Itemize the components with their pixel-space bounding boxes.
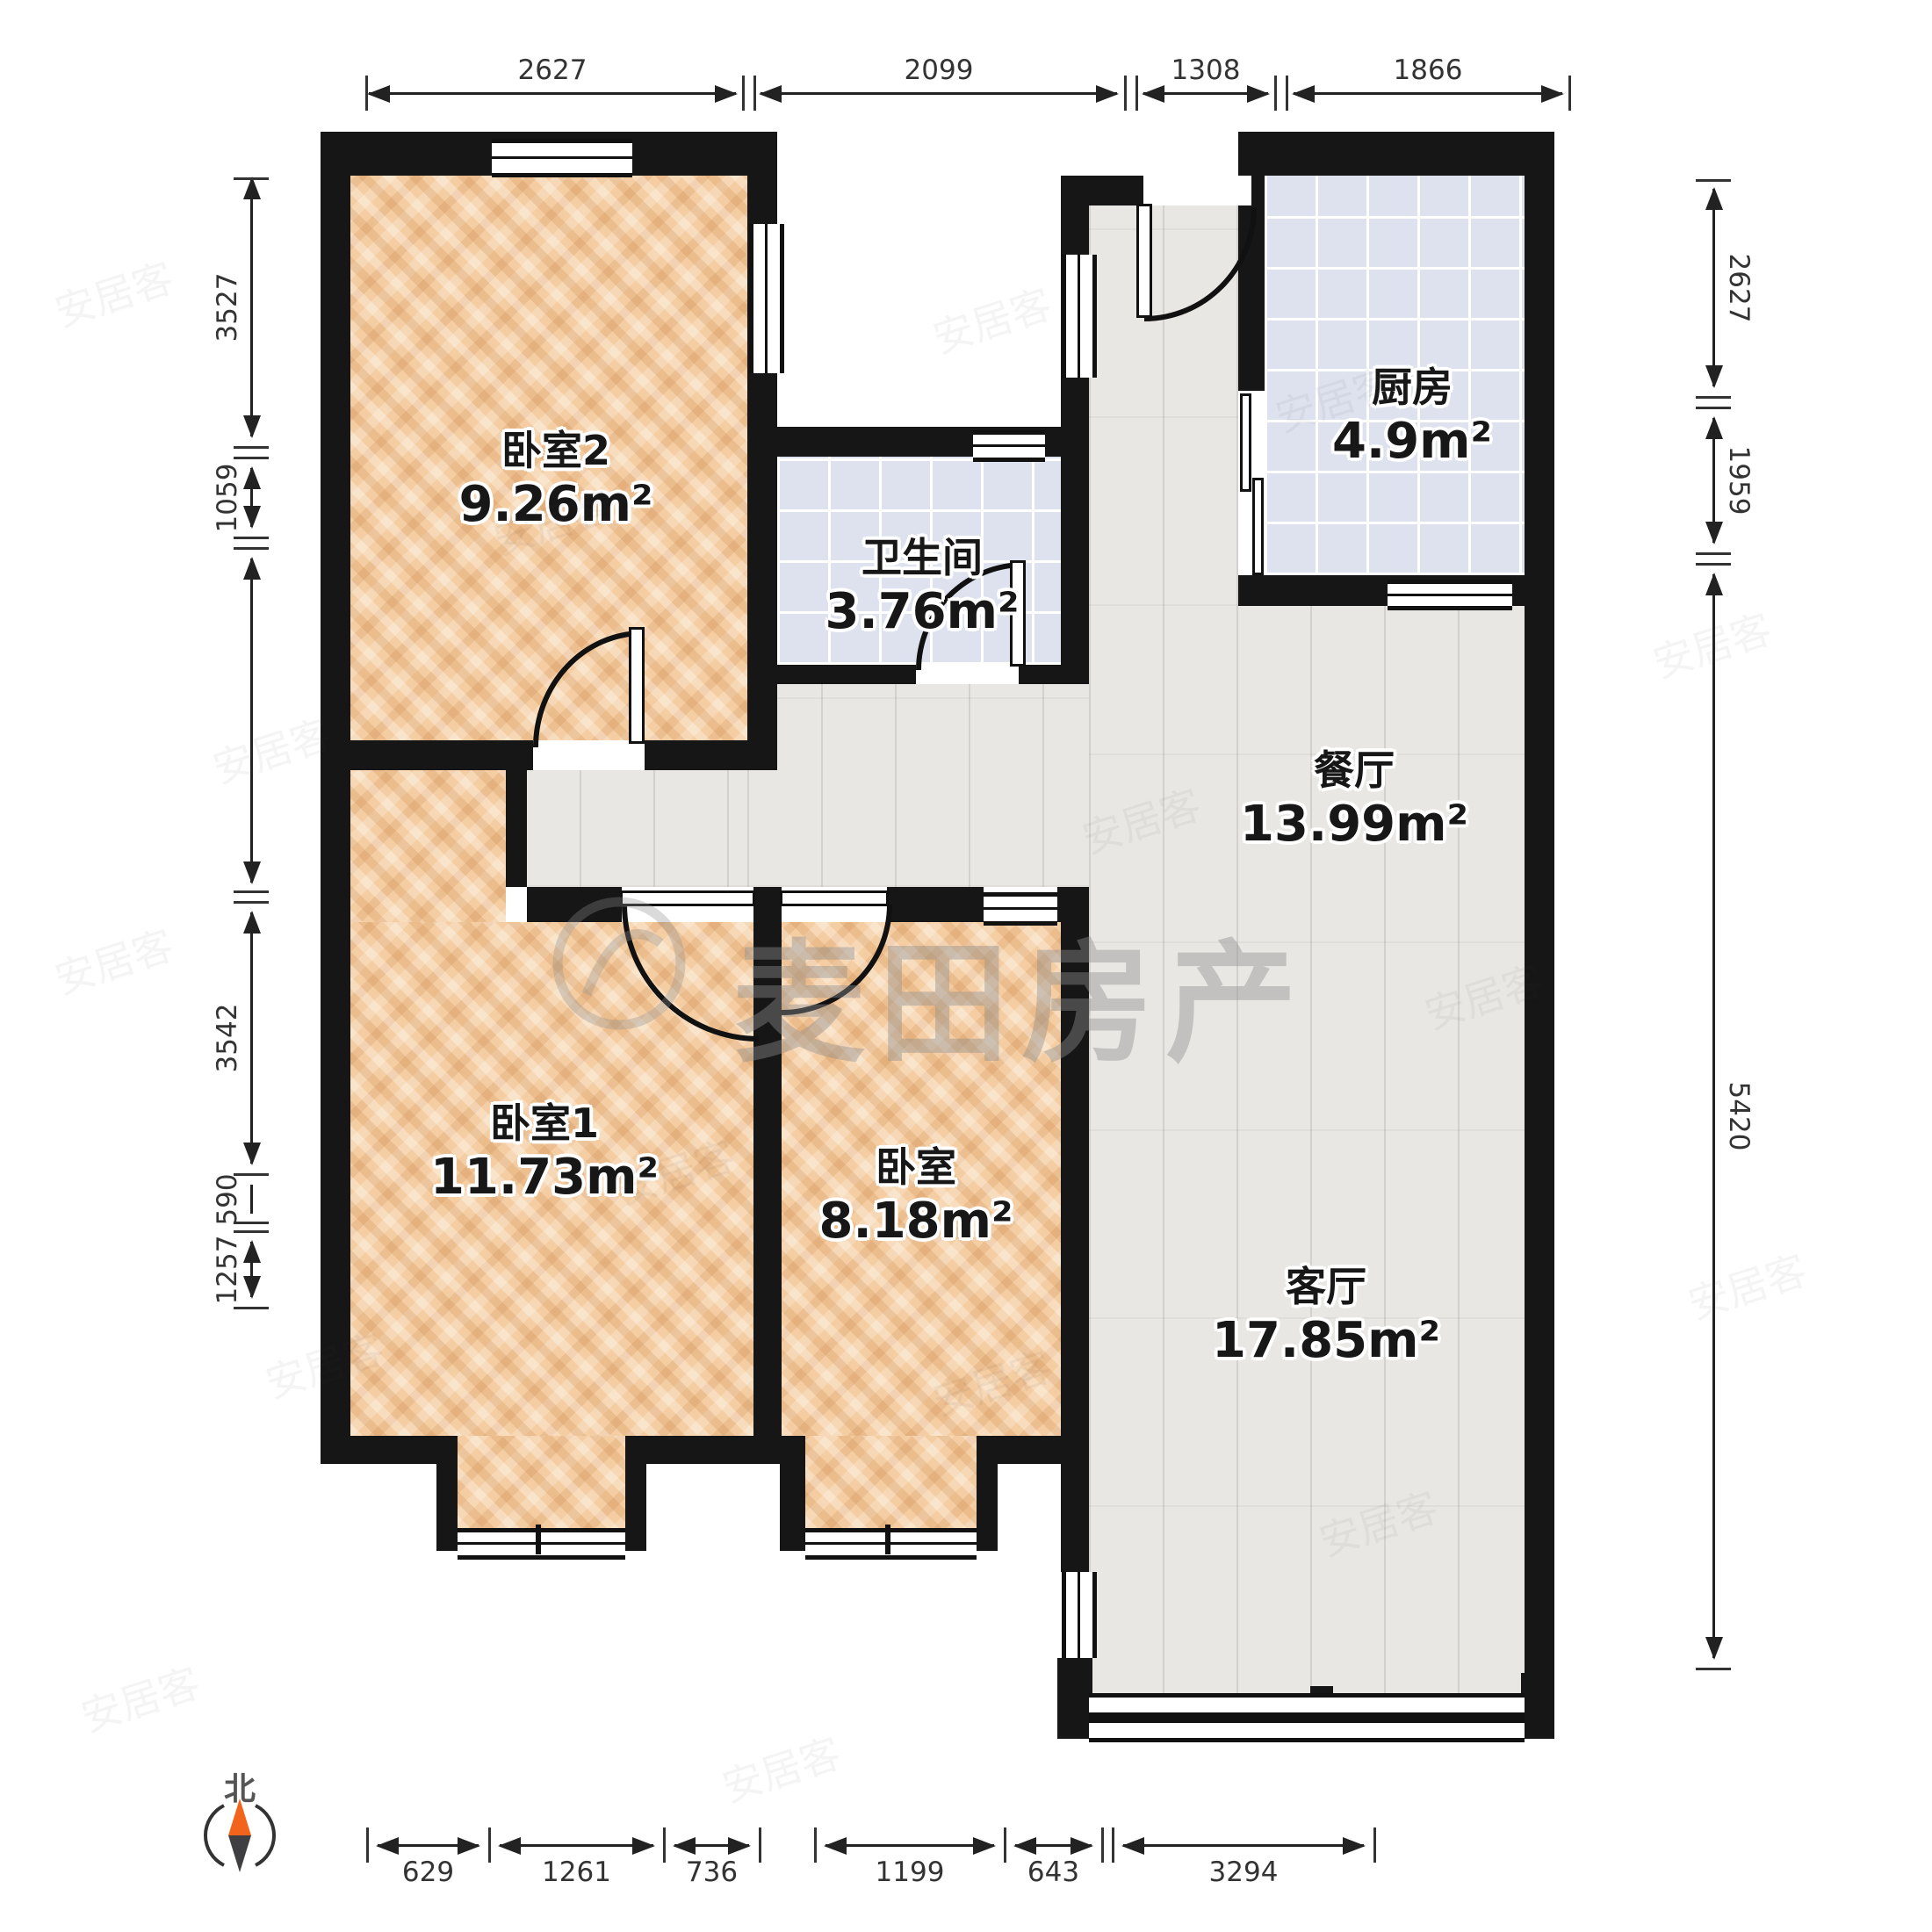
dimension-tick — [1004, 1827, 1006, 1863]
room-area: 13.99m² — [1240, 797, 1468, 853]
dimension-bottom-1199: 1199 — [825, 1844, 994, 1847]
dimension-left-3527: 3527 — [250, 178, 253, 436]
dimension-tick — [742, 76, 745, 111]
dimension-left-590: 590 — [250, 1185, 253, 1214]
dimension-tick — [234, 1230, 269, 1233]
window — [1062, 1572, 1097, 1658]
dimension-tick — [234, 901, 269, 904]
sliding-door-kitchen — [1252, 478, 1264, 575]
wall — [1238, 132, 1554, 176]
window-tick — [885, 1525, 890, 1554]
dimension-tick — [1696, 407, 1731, 409]
dimension-tick — [1696, 396, 1731, 399]
wall — [506, 770, 527, 887]
watermark-portal: 安居客 — [1680, 1238, 1813, 1330]
dimension-bottom-1261: 1261 — [500, 1844, 653, 1847]
dimension-top-1308: 1308 — [1143, 92, 1268, 95]
compass-icon — [198, 1793, 282, 1878]
wall — [625, 1436, 646, 1551]
room-name: 卧室2 — [458, 426, 652, 477]
room-name: 卧室 — [818, 1143, 1013, 1193]
window-living-south — [1089, 1693, 1525, 1742]
room-area: 4.9m² — [1332, 414, 1492, 470]
dimension-bottom-629: 629 — [378, 1844, 479, 1847]
dimension-tick — [1568, 76, 1571, 111]
dimension-tick — [234, 537, 269, 539]
dimension-tick — [234, 177, 269, 180]
wall — [747, 665, 916, 684]
dimension-tick — [366, 1827, 369, 1863]
window-tick — [536, 1525, 541, 1554]
room-label-bathroom: 卫生间 3.76m² — [825, 533, 1019, 640]
room-floor-bedroom1-bay — [458, 1436, 625, 1528]
room-floor-bedroom-bay — [805, 1436, 977, 1528]
wall — [780, 1436, 805, 1551]
wall — [1525, 132, 1554, 1699]
dimension-tick — [1696, 552, 1731, 555]
dimension-tick — [1373, 1827, 1376, 1863]
door-leaf-bedroom2 — [629, 627, 645, 744]
dimension-tick — [1274, 76, 1277, 111]
room-area: 17.85m² — [1212, 1313, 1440, 1369]
room-floor-bedroom1 — [350, 770, 506, 922]
dimension-tick — [1135, 76, 1138, 111]
dimension-right-1959: 1959 — [1712, 418, 1715, 543]
dimension-tick — [234, 1307, 269, 1309]
window — [973, 430, 1045, 462]
watermark-portal: 安居客 — [925, 272, 1058, 364]
dimension-left-1059: 1059 — [250, 468, 253, 527]
dimension-top-2099: 2099 — [761, 92, 1117, 95]
dimension-tick — [1696, 1668, 1731, 1670]
wall — [1251, 176, 1265, 205]
window — [1388, 580, 1512, 610]
dimension-tick — [814, 1827, 817, 1863]
dimension-top-2627: 2627 — [369, 92, 736, 95]
room-name: 餐厅 — [1240, 746, 1468, 797]
wall — [321, 132, 350, 1464]
dimension-tick — [753, 76, 756, 111]
dimension-bottom-3294: 3294 — [1123, 1844, 1364, 1847]
dimension-tick — [1101, 1827, 1104, 1863]
dimension-tick — [759, 1827, 761, 1863]
dimension-tick — [663, 1827, 666, 1863]
wall — [998, 1436, 1089, 1464]
watermark-portal: 安居客 — [714, 1721, 847, 1813]
dimension-top-1866: 1866 — [1294, 92, 1562, 95]
room-label-living: 客厅 17.85m² — [1212, 1262, 1440, 1369]
dimension-tick — [234, 1173, 269, 1176]
room-label-dining: 餐厅 13.99m² — [1240, 746, 1468, 853]
room-area: 8.18m² — [818, 1193, 1013, 1250]
watermark-logo-icon — [544, 889, 694, 1038]
watermark-portal: 安居客 — [73, 1651, 206, 1743]
dimension-tick — [234, 890, 269, 893]
watermark-brand: 麦田房产 — [733, 898, 1309, 1088]
dimension-left-3542: 3542 — [250, 912, 253, 1164]
room-name: 卧室1 — [430, 1099, 659, 1150]
wall — [1521, 1673, 1554, 1739]
door-leaf-entry — [1136, 204, 1152, 318]
room-name: 客厅 — [1212, 1262, 1440, 1313]
dimension-tick — [1696, 179, 1731, 182]
dimension-bottom-736: 736 — [674, 1844, 749, 1847]
wall — [321, 740, 533, 770]
wall — [1061, 176, 1143, 205]
wall — [977, 1436, 998, 1551]
watermark-portal: 安居客 — [1645, 597, 1778, 689]
dimension-tick — [365, 76, 368, 111]
wall — [645, 740, 747, 770]
dimension-tick — [1696, 563, 1731, 566]
dimension-tick — [234, 457, 269, 459]
wall — [1019, 665, 1061, 684]
dimension-tick — [234, 446, 269, 449]
watermark-portal: 安居客 — [205, 703, 338, 795]
watermark-portal: 安居客 — [47, 246, 180, 338]
floor-plan: 卧室2 9.26m² 卫生间 3.76m² 厨房 4.9m² 餐厅 13.99m… — [0, 0, 1932, 1932]
room-label-bedroom: 卧室 8.18m² — [818, 1143, 1013, 1250]
dimension-right-5420: 5420 — [1712, 574, 1715, 1658]
dimension-right-2627: 2627 — [1712, 189, 1715, 386]
wall — [646, 1436, 753, 1464]
dimension-left-segment — [250, 559, 253, 883]
dimension-tick — [488, 1827, 491, 1863]
window — [749, 224, 784, 373]
window — [492, 139, 632, 177]
dimension-tick — [234, 547, 269, 550]
room-name: 卫生间 — [825, 533, 1019, 584]
room-area: 3.76m² — [825, 584, 1019, 640]
watermark-portal: 安居客 — [47, 913, 180, 1006]
window-bay-bedroom — [805, 1528, 977, 1560]
wall — [321, 1436, 436, 1464]
dimension-tick — [1286, 76, 1288, 111]
room-floor-corridor — [747, 684, 1089, 887]
dimension-tick — [234, 1222, 269, 1224]
dimension-bottom-643: 643 — [1015, 1844, 1092, 1847]
wall — [1057, 1658, 1092, 1739]
sliding-door-kitchen — [1240, 393, 1251, 492]
room-floor-corridor — [506, 770, 747, 887]
wall — [436, 1436, 458, 1551]
window-bay-bedroom1 — [458, 1528, 625, 1560]
window — [1062, 255, 1097, 378]
dimension-tick — [1112, 1827, 1114, 1863]
dimension-tick — [1124, 76, 1127, 111]
dimension-left-1257: 1257 — [250, 1242, 253, 1297]
